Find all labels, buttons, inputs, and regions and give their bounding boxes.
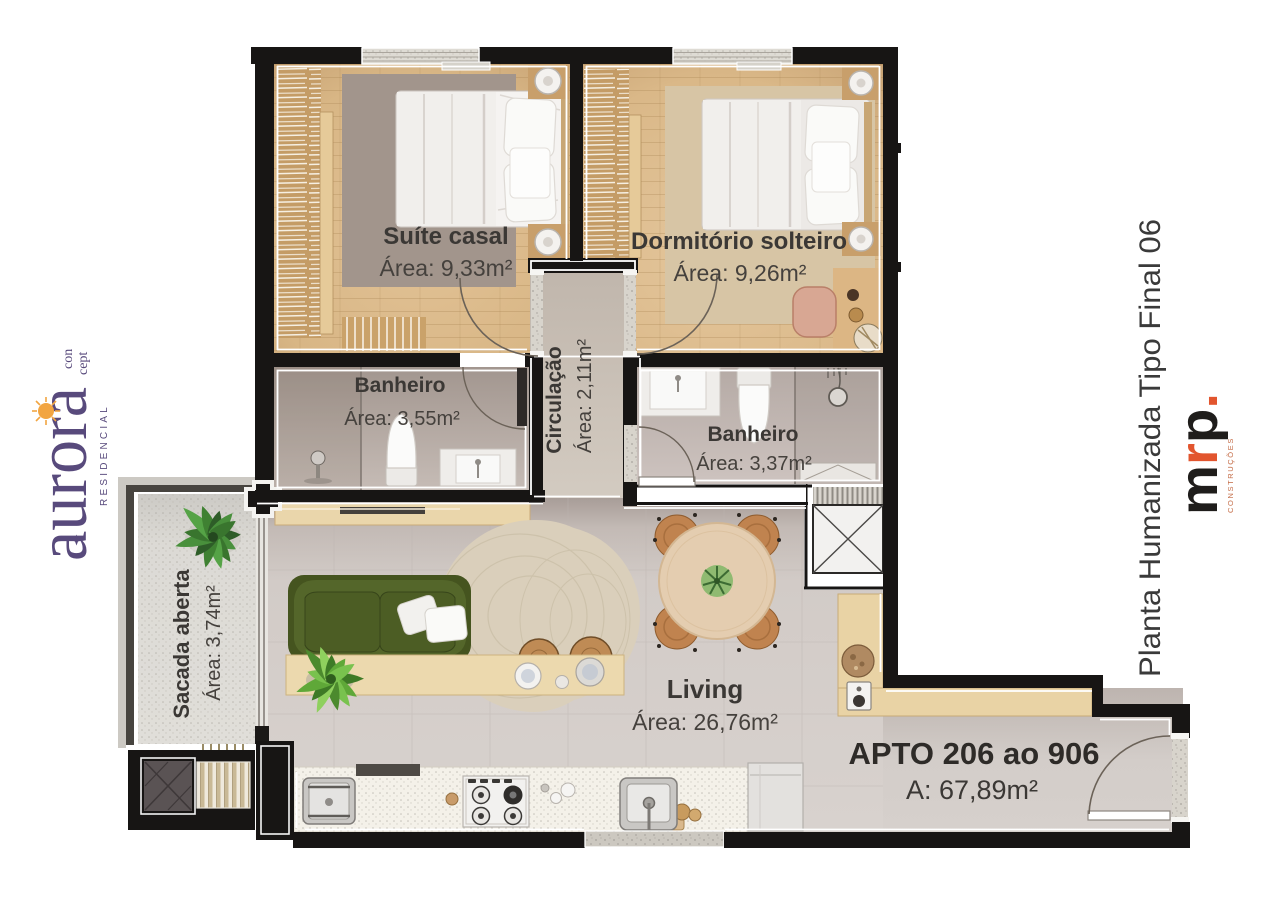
svg-text:Dormitório solteiro: Dormitório solteiro	[631, 228, 847, 255]
svg-text:Suíte casal: Suíte casal	[383, 223, 508, 250]
svg-text:Área: 26,76m²: Área: 26,76m²	[632, 709, 778, 735]
svg-text:Área: 9,26m²: Área: 9,26m²	[674, 260, 807, 286]
svg-text:con: con	[61, 349, 76, 369]
svg-text:RESIDENCIAL: RESIDENCIAL	[99, 404, 110, 506]
svg-text:Área: 3,55m²: Área: 3,55m²	[344, 407, 460, 430]
svg-text:Sacada aberta: Sacada aberta	[169, 569, 194, 719]
svg-text:mrp.: mrp.	[1169, 393, 1229, 515]
svg-text:Living: Living	[667, 674, 744, 704]
svg-text:APTO 206 ao 906: APTO 206 ao 906	[848, 736, 1099, 771]
svg-text:aurora: aurora	[22, 387, 102, 561]
svg-text:Área: 3,74m²: Área: 3,74m²	[202, 585, 225, 701]
svg-text:CONSTRUÇÕES: CONSTRUÇÕES	[1226, 437, 1235, 513]
svg-text:Planta Humanizada Tipo Final 0: Planta Humanizada Tipo Final 06	[1134, 219, 1167, 677]
svg-text:A: 67,89m²: A: 67,89m²	[906, 775, 1038, 805]
svg-text:Área: 9,33m²: Área: 9,33m²	[380, 255, 513, 281]
svg-text:Área: 2,11m²: Área: 2,11m²	[573, 339, 596, 453]
svg-text:Banheiro: Banheiro	[354, 374, 445, 397]
svg-text:Circulação: Circulação	[543, 346, 566, 453]
svg-text:Área: 3,37m²: Área: 3,37m²	[696, 452, 812, 475]
svg-text:cept: cept	[76, 352, 91, 375]
svg-text:Banheiro: Banheiro	[707, 423, 798, 446]
